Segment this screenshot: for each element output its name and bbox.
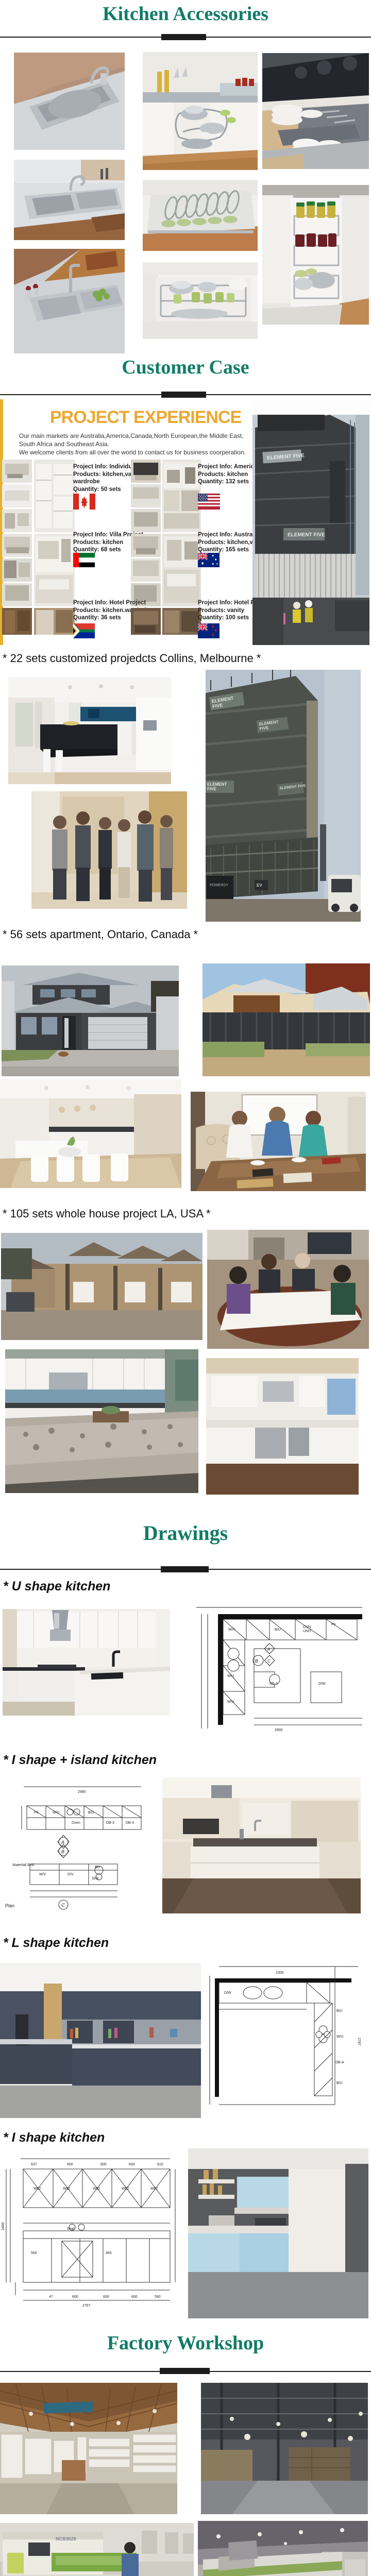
svg-text:DB-3: DB-3 [269,1682,278,1686]
svg-text:590: 590 [155,2295,161,2299]
svg-text:Sink: Sink [92,1877,99,1880]
svg-text:2400: 2400 [2,2222,5,2230]
svg-text:W/U: W/U [53,1811,60,1815]
svg-text:2990: 2990 [78,1790,86,1794]
svg-text:EV: EV [257,883,262,888]
svg-text:Waterfall End: Waterfall End [12,1863,34,1867]
svg-text:Pri: Pri [34,1811,39,1815]
svg-text:DB-3: DB-3 [126,1821,134,1825]
svg-text:600: 600 [131,2295,138,2299]
svg-text:W/V: W/V [39,1873,46,1876]
svg-text:2787: 2787 [357,2038,361,2046]
svg-text:2900: 2900 [275,1728,283,1732]
svg-text:600: 600 [103,2295,109,2299]
svg-text:B: B [255,1658,258,1664]
svg-text:600: 600 [72,2295,78,2299]
svg-text:ELEMENT FIVE: ELEMENT FIVE [288,532,325,538]
svg-text:B: B [61,1849,64,1854]
svg-text:Oven: Oven [72,1821,80,1825]
svg-text:2300: 2300 [276,1971,284,1975]
svg-text:W02: W02 [33,2187,41,2191]
svg-text:A: A [61,1840,64,1845]
svg-text:610: 610 [157,2163,163,2166]
svg-text:POWERDY: POWERDY [210,884,229,887]
svg-text:W/U: W/U [228,1628,235,1632]
svg-text:W02: W02 [150,2187,158,2191]
svg-text:B/U: B/U [88,1811,94,1815]
svg-text:W/U: W/U [336,2035,344,2039]
svg-text:NCB3028: NCB3028 [56,2536,76,2541]
svg-text:C: C [61,1903,65,1908]
svg-text:B/U: B/U [336,2009,343,2013]
svg-text:DB-3: DB-3 [106,1821,114,1825]
svg-text:W02: W02 [93,2187,100,2191]
svg-text:D/W: D/W [224,1991,231,1995]
svg-text:600: 600 [100,2163,107,2166]
svg-text:D/W: D/W [318,1682,326,1686]
svg-text:W/U: W/U [227,1674,234,1678]
svg-text:Bin: Bin [95,1866,100,1869]
svg-text:Plan: Plan [5,1903,14,1908]
svg-text:C: C [267,1659,271,1664]
svg-text:B/U: B/U [275,1628,281,1632]
svg-text:600: 600 [67,2163,73,2166]
svg-text:Seal: Seal [67,2227,74,2231]
svg-text:W02: W02 [63,2187,71,2191]
svg-text:ELEMENT: ELEMENT [207,782,227,787]
svg-text:A: A [267,1647,270,1652]
svg-text:FIVE: FIVE [207,787,216,791]
svg-text:OVN: OVN [303,1625,311,1629]
svg-text:465: 465 [106,2251,112,2255]
svg-text:DB-A: DB-A [335,2061,344,2064]
svg-text:W/U: W/U [227,1700,234,1704]
svg-text:D/V: D/V [68,1873,74,1876]
svg-text:W02: W02 [122,2187,129,2191]
svg-text:47: 47 [49,2295,53,2299]
svg-text:UNIT: UNIT [303,1630,312,1633]
svg-text:B/U: B/U [336,2081,343,2085]
svg-text:2787: 2787 [82,2304,91,2308]
svg-text:600: 600 [129,2163,135,2166]
svg-text:560: 560 [31,2251,37,2255]
svg-text:Pri: Pri [331,1623,336,1626]
svg-text:637: 637 [31,2163,37,2166]
